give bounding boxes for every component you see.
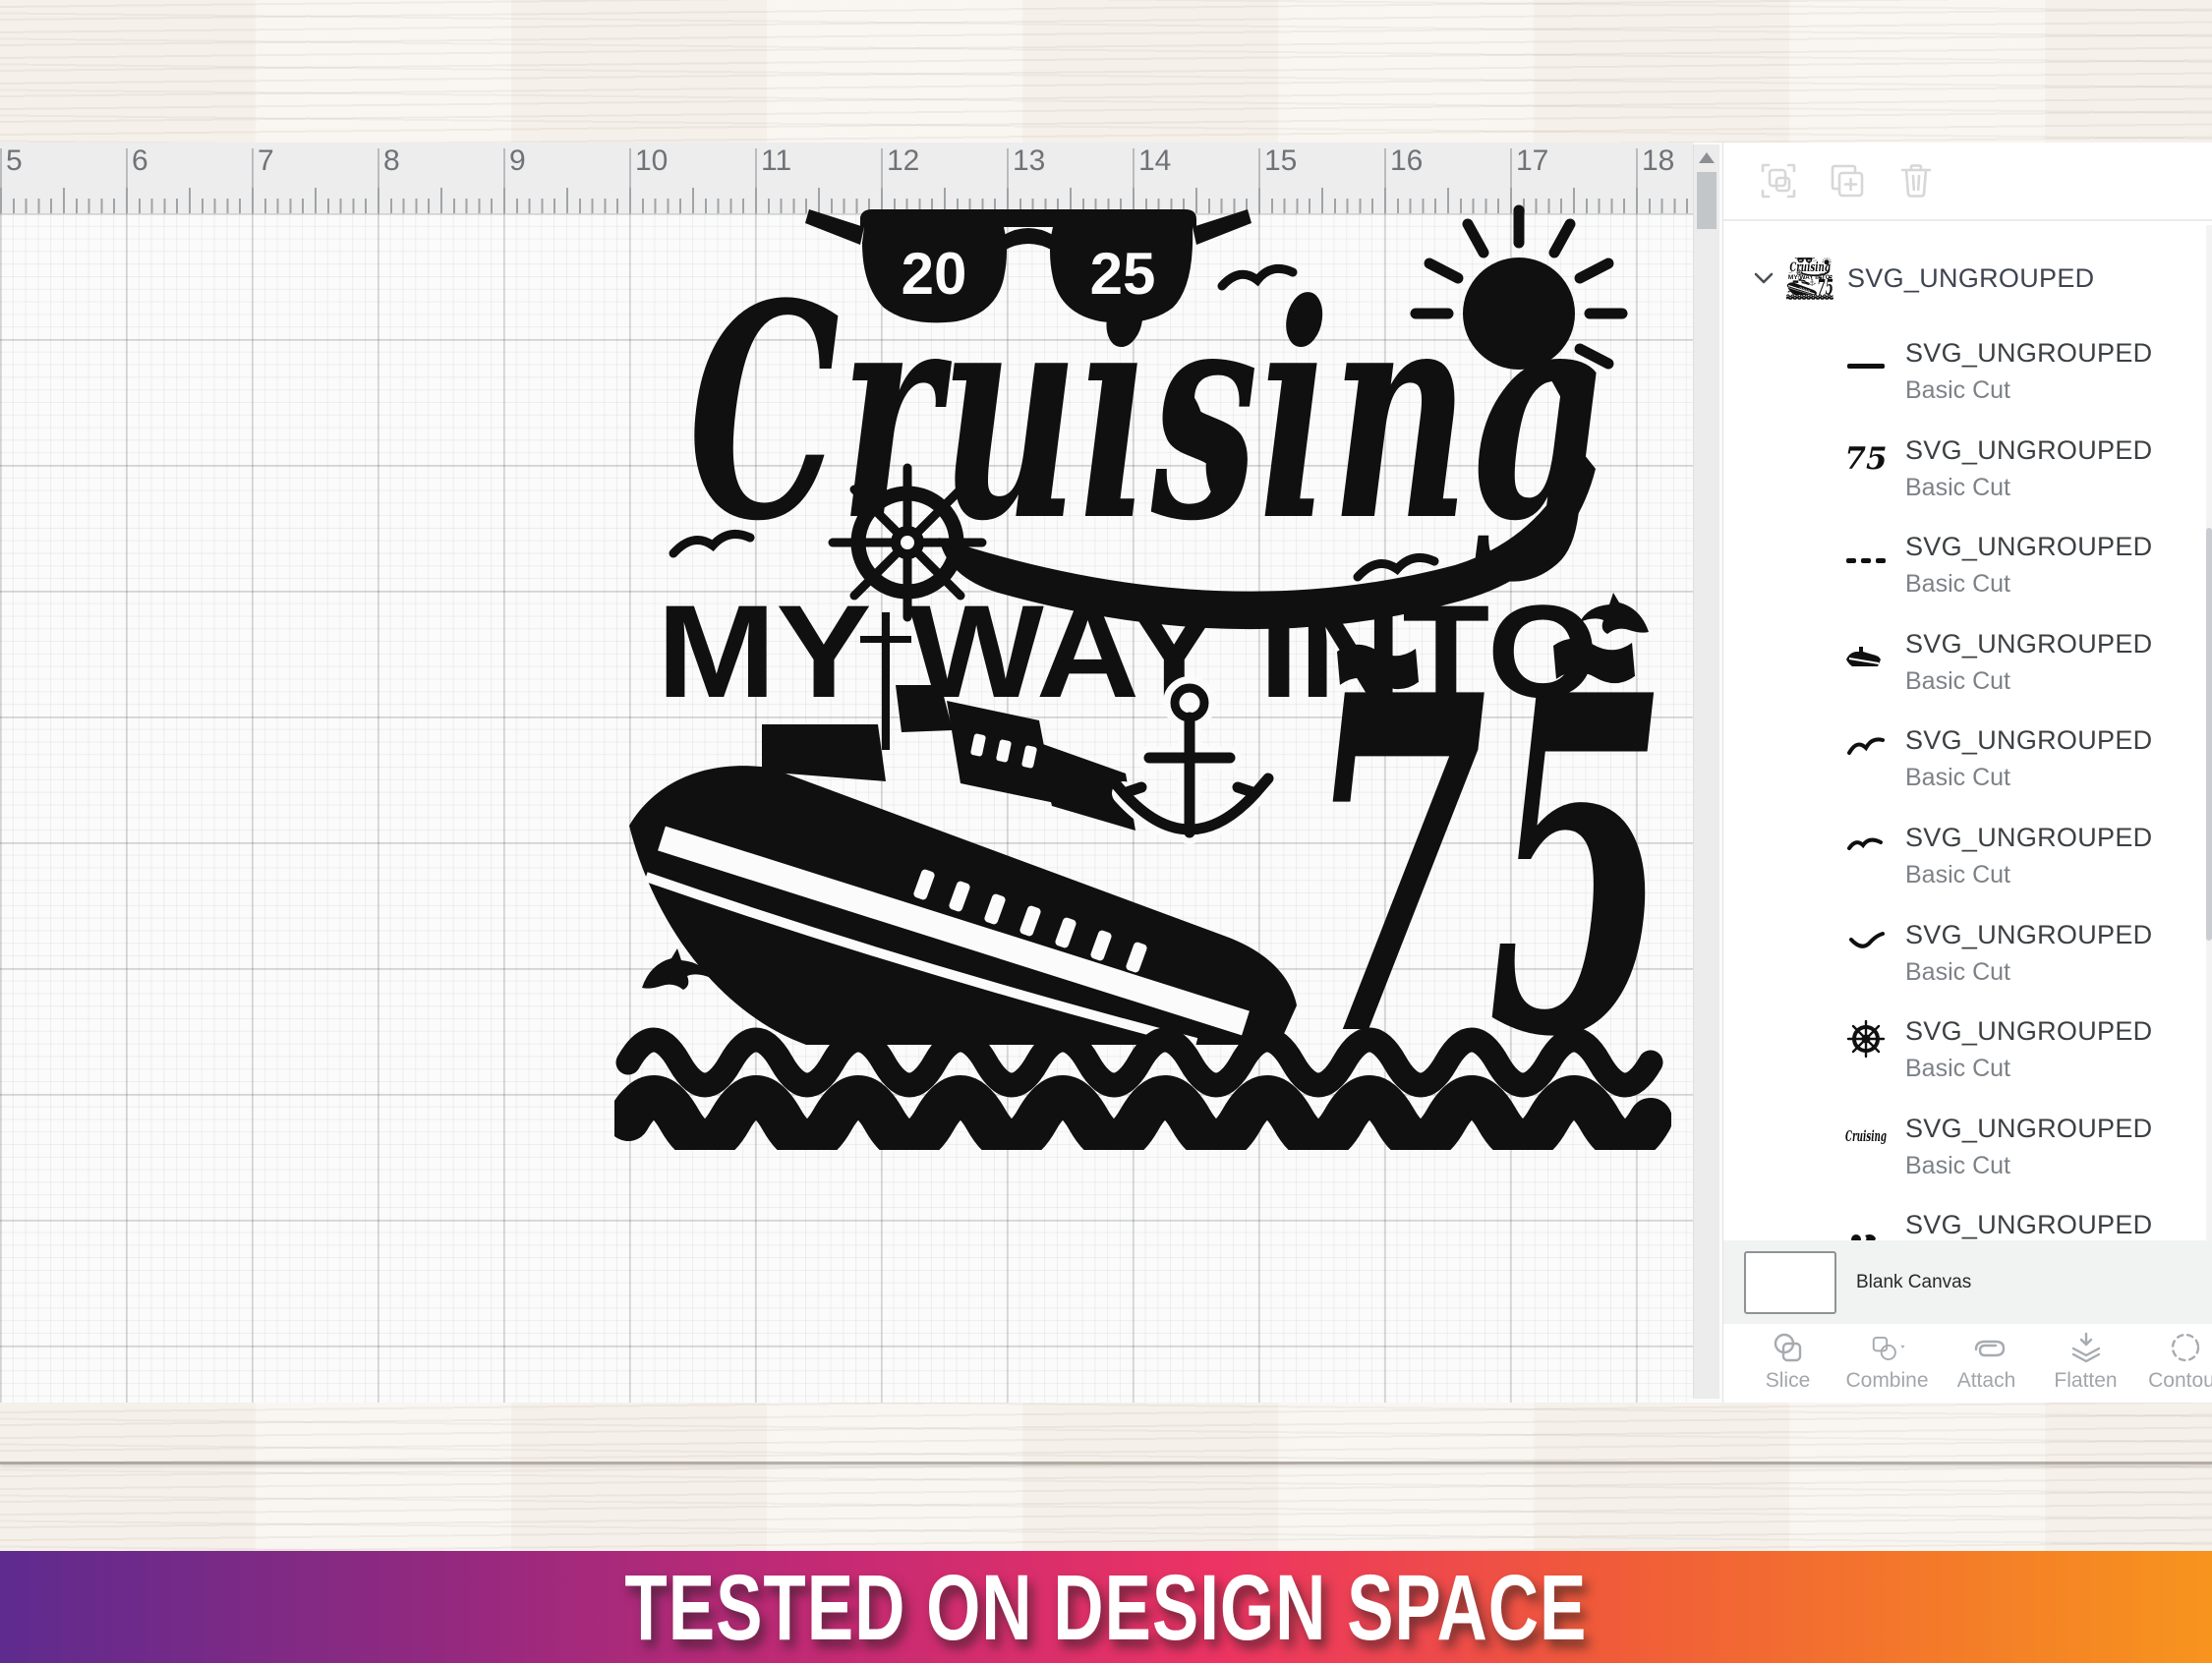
layer-subtitle: Basic Cut (1905, 954, 2152, 990)
flatten-button[interactable]: Flatten (2036, 1324, 2135, 1403)
promo-banner: TESTED ON DESIGN SPACE (0, 1551, 2212, 1663)
layer-subtitle: Basic Cut (1905, 470, 2152, 505)
svg-text:Cruising: Cruising (1845, 1127, 1887, 1145)
cruising-script-thumbnail-icon: Cruising (1840, 1111, 1892, 1162)
focus-select-icon[interactable] (1757, 159, 1800, 202)
wood-plank-seam (0, 1462, 2212, 1464)
layer-row[interactable]: SVG_UNGROUPED Basic Cut (1723, 519, 2212, 616)
layer-subtitle: Basic Cut (1905, 373, 2152, 408)
layer-subtitle: Basic Cut (1905, 857, 2152, 892)
ruler-number: 8 (383, 144, 400, 178)
ship-thumbnail-icon (1840, 626, 1892, 677)
layers-list: SVG_UNGROUPED Basic Cut 75 SVG_UNGROUPED… (1723, 325, 2212, 1294)
scroll-up-arrow-icon[interactable] (1699, 152, 1715, 163)
attach-icon (1968, 1330, 2006, 1367)
blank-canvas-thumbnail (1744, 1251, 1836, 1314)
action-label: Combine (1845, 1369, 1928, 1393)
ruler-number: 10 (635, 144, 668, 178)
contour-icon (2167, 1330, 2204, 1367)
action-label: Contour (2148, 1369, 2212, 1393)
ruler-number: 6 (132, 144, 148, 178)
ruler-number: 11 (761, 144, 791, 178)
layer-row[interactable]: SVG_UNGROUPED Basic Cut (1723, 810, 2212, 907)
ruler-number: 9 (509, 144, 526, 178)
layer-title: SVG_UNGROUPED (1905, 1013, 2152, 1049)
caret-down-icon (1900, 1346, 1904, 1348)
layer-title: SVG_UNGROUPED (1905, 432, 2152, 468)
layer-title: SVG_UNGROUPED (1905, 722, 2152, 758)
group-thumbnail (1786, 257, 1834, 300)
chevron-down-icon[interactable] (1753, 270, 1775, 286)
layer-row[interactable]: SVG_UNGROUPED Basic Cut (1723, 1004, 2212, 1101)
ruler-number: 5 (6, 144, 23, 178)
canvas-scrollbar[interactable] (1693, 144, 1719, 1399)
layer-title: SVG_UNGROUPED (1905, 626, 2152, 661)
ruler-number: 16 (1390, 144, 1423, 178)
blank-canvas-row[interactable]: Blank Canvas (1723, 1240, 2212, 1324)
bottom-action-bar: Slice Combine Attach (1723, 1324, 2212, 1403)
bird-thumbnail-icon (1840, 917, 1892, 968)
canvas-scrollbar-thumb[interactable] (1697, 172, 1717, 229)
flatten-icon (2067, 1330, 2105, 1367)
layer-title: SVG_UNGROUPED (1905, 529, 2152, 564)
panel-scrollbar-thumb[interactable] (2206, 528, 2212, 941)
line-thumbnail-icon (1840, 335, 1892, 386)
layer-group-row[interactable]: SVG_UNGROUPED (1723, 239, 2212, 317)
action-label: Flatten (2054, 1369, 2117, 1393)
layer-row[interactable]: SVG_UNGROUPED Basic Cut (1723, 907, 2212, 1004)
combine-button[interactable]: Combine (1837, 1324, 1937, 1403)
promo-banner-text: TESTED ON DESIGN SPACE (625, 1554, 1588, 1661)
layer-row[interactable]: 75 SVG_UNGROUPED Basic Cut (1723, 423, 2212, 520)
attach-button[interactable]: Attach (1937, 1324, 2036, 1403)
ruler-number: 17 (1516, 144, 1548, 178)
layer-group-title: SVG_UNGROUPED (1847, 263, 2094, 294)
slice-icon (1770, 1330, 1807, 1367)
ruler-number: 18 (1642, 144, 1674, 178)
ruler-number: 15 (1264, 144, 1297, 178)
layer-row[interactable]: SVG_UNGROUPED Basic Cut (1723, 616, 2212, 714)
bird-thumbnail-icon (1840, 722, 1892, 774)
layers-toolbar (1723, 143, 2212, 221)
layer-row[interactable]: SVG_UNGROUPED Basic Cut (1723, 713, 2212, 810)
action-label: Slice (1766, 1369, 1811, 1393)
layer-title: SVG_UNGROUPED (1905, 1207, 2152, 1242)
number-75-thumbnail-icon: 75 (1840, 432, 1892, 484)
layers-panel: SVG_UNGROUPED SVG_UNGROUPED Basic Cut 75… (1722, 143, 2212, 1403)
trash-icon[interactable] (1894, 159, 1938, 202)
layer-title: SVG_UNGROUPED (1905, 1111, 2152, 1146)
layer-subtitle: Basic Cut (1905, 1051, 2152, 1086)
layer-row[interactable]: SVG_UNGROUPED Basic Cut (1723, 325, 2212, 423)
action-label: Attach (1957, 1369, 2016, 1393)
ruler-number: 7 (258, 144, 274, 178)
bird-thumbnail-icon (1840, 820, 1892, 871)
layer-title: SVG_UNGROUPED (1905, 917, 2152, 952)
layer-subtitle: Basic Cut (1905, 566, 2152, 602)
ship-wheel-thumbnail-icon (1840, 1013, 1892, 1064)
layer-subtitle: Basic Cut (1905, 663, 2152, 699)
layer-title: SVG_UNGROUPED (1905, 335, 2152, 371)
dashed-line-thumbnail-icon (1840, 529, 1892, 580)
layer-subtitle: Basic Cut (1905, 760, 2152, 795)
contour-button[interactable]: Contour (2135, 1324, 2212, 1403)
duplicate-icon[interactable] (1826, 159, 1869, 202)
canvas-area: 5 6 7 8 9 10 11 12 13 14 15 16 17 18 (0, 143, 1722, 1403)
svg-design-artwork[interactable] (614, 192, 1671, 1150)
app-window: Cruising 20 25 (0, 0, 2212, 1663)
svg-text:75: 75 (1844, 441, 1887, 477)
ruler-number: 14 (1138, 144, 1171, 178)
ruler-number: 13 (1013, 144, 1045, 178)
layer-subtitle: Basic Cut (1905, 1148, 2152, 1183)
layer-row[interactable]: Cruising SVG_UNGROUPED Basic Cut (1723, 1101, 2212, 1198)
blank-canvas-label: Blank Canvas (1856, 1272, 1971, 1293)
layer-title: SVG_UNGROUPED (1905, 820, 2152, 855)
slice-button[interactable]: Slice (1738, 1324, 1837, 1403)
ruler-number: 12 (887, 144, 919, 178)
combine-icon (1869, 1330, 1906, 1367)
